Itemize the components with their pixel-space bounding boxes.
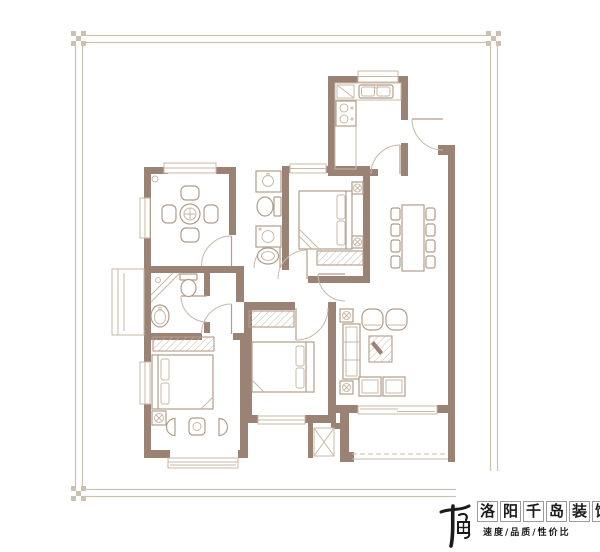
wall-segment [328,76,335,176]
frame-corner-ornament [486,31,501,46]
bedroom-3 [152,337,228,436]
toilet [257,197,281,216]
chair [181,228,199,242]
chair [162,205,176,223]
study-room [152,176,218,242]
coffee-table [369,336,392,362]
chair [204,205,218,223]
wall-segment [340,452,354,462]
nightstand-lamp [352,236,363,248]
sofa [343,324,360,379]
chair [391,240,400,252]
wall-segment [437,405,448,413]
wall-segment [236,266,244,302]
chair [181,186,199,200]
armchair [386,309,407,330]
wall-segment [363,166,370,283]
kitchen-sink [359,85,393,98]
wall-segment [308,276,363,283]
brand-name-char: 千 [523,501,544,522]
wall-segment [240,333,248,458]
window-bedroom1-top [290,164,326,173]
wardrobe [249,311,294,327]
wall-segment [282,166,289,270]
brand-name-char: 阳 [500,501,521,522]
dining-area [391,205,435,271]
floor-plan [0,0,600,552]
stove [336,101,356,126]
wall-segment [334,405,358,413]
brand-name-char: 洛 [477,501,498,522]
toilet [180,274,197,297]
double-bed [252,342,314,392]
bathroom-2 [151,273,197,327]
chair [426,224,435,236]
dining-table [402,205,424,271]
side-table-lamp [340,381,353,394]
wall-segment [401,143,408,176]
chair [391,208,400,220]
wall-segment [144,404,151,450]
chair [426,208,435,220]
armchair [362,309,383,330]
bedroom-1 [299,182,363,265]
shower-corner [151,273,180,302]
chair [219,419,228,436]
chair [167,419,176,436]
logo-mark-text: 千岛 [472,501,473,502]
wall-segment [328,302,336,415]
bay-window-bedroom3 [168,458,238,468]
window-bedroom3-left [140,362,150,404]
chair [391,224,400,236]
wall-segment [308,423,313,458]
bathroom-1 [256,171,281,264]
frame-corner-ornament [71,486,86,501]
door-study [202,236,232,266]
bathtub-basin [258,248,279,264]
bedroom-2 [249,311,314,392]
wash-basin [151,305,169,327]
wall-segment [401,76,408,120]
wall-segment [144,273,151,340]
door-bathroom2 [181,296,207,322]
wardrobe [153,337,214,351]
brand-tagline: 速度/品质/性价比 [477,525,600,538]
wash-basin-cabinet [256,171,281,192]
wall-segment [328,76,362,83]
window-bedroom2-bottom [258,416,305,424]
balcony-railing [352,454,448,459]
duct-shaft [314,428,334,456]
wall-segment [144,450,170,458]
double-bed [152,355,213,409]
double-bed [299,191,352,249]
brand-name-char: 岛 [546,501,567,522]
sofa-seat [383,377,405,396]
sofa-seat [359,377,381,396]
wall-segment [204,273,210,296]
wall-segment [328,169,378,176]
door-bedroom2 [296,308,328,340]
nightstand-lamp [152,411,166,425]
wall-segment [229,167,236,235]
tea-corner [167,418,228,436]
window-kitchen-top [358,71,398,82]
chair [391,256,400,268]
wall-segment [305,415,336,423]
window-study-top [164,163,216,173]
nightstand-lamp [352,182,363,194]
wall-segment [144,340,151,362]
wall-segment [448,155,455,462]
bay-window-bathroom2 [112,269,144,335]
living-room [340,309,407,396]
chair [426,240,435,252]
brand-name-char: 装 [569,501,590,522]
side-table-lamp [340,309,353,322]
wardrobe [317,251,363,265]
brand-name: 洛阳千岛装饰 [477,501,600,522]
kitchen [335,83,401,169]
chair [426,256,435,268]
logo-mark-icon: 千岛 [438,501,472,548]
brand-name-char: 饰 [592,501,600,522]
sliding-door-living-balcony [358,406,437,414]
window-study-left [140,198,150,238]
wall-segment [144,266,242,273]
wall-segment [204,322,210,333]
frame-corner-ornament [71,31,86,46]
side-table [189,418,205,435]
brand-logo: 千岛 洛阳千岛装饰 速度/品质/性价比 [438,501,600,548]
corner-column [152,176,158,182]
washing-machine [256,226,281,247]
wall-segment [238,450,248,458]
